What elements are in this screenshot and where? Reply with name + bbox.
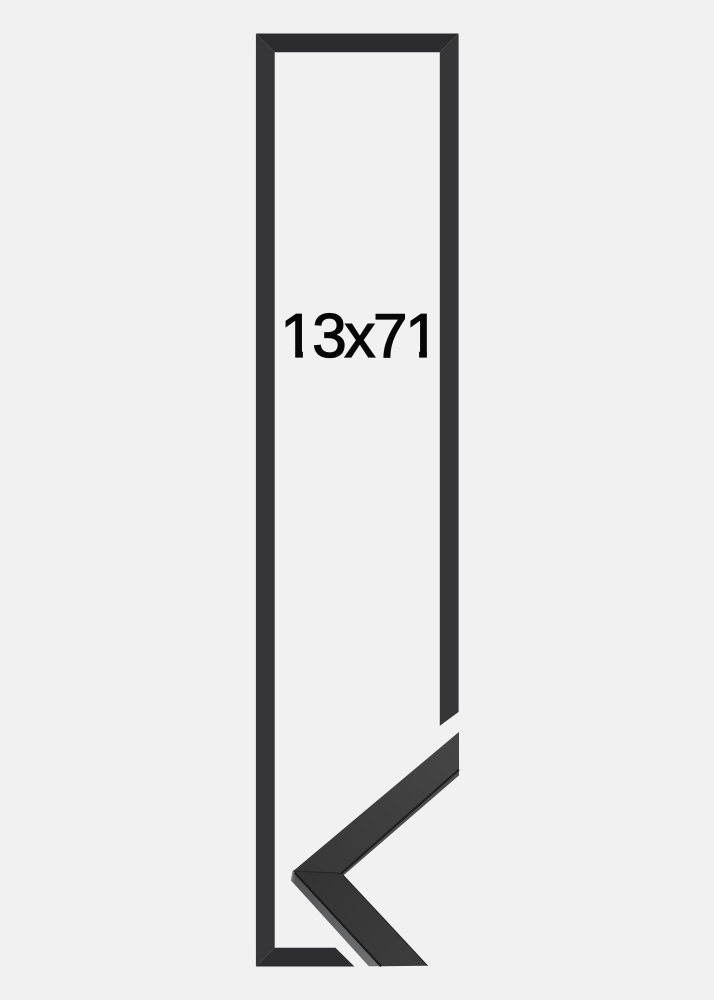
svg-text:13x71: 13x71 (280, 302, 437, 371)
